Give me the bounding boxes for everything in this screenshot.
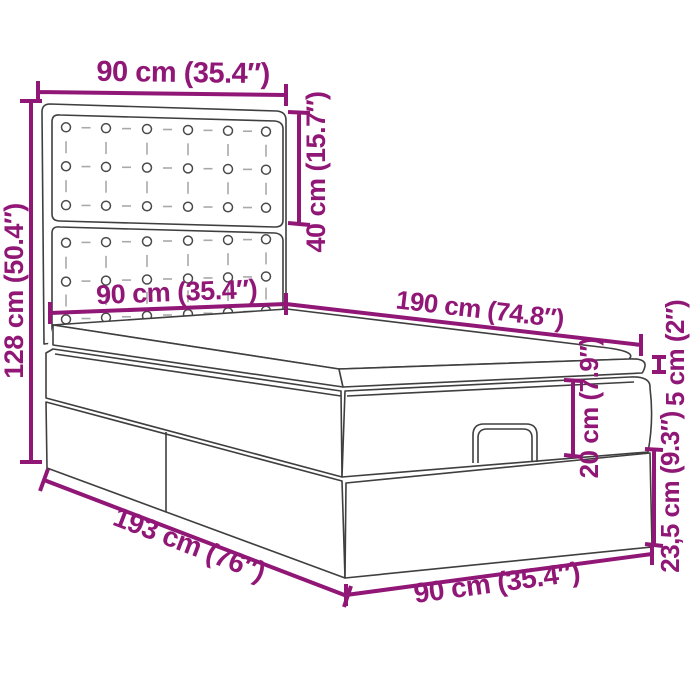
dim-label-frame-height: 20 cm (7.9″) (574, 338, 604, 479)
tuft-button (62, 315, 71, 324)
tuft-button (184, 125, 193, 134)
tuft-button (262, 165, 271, 174)
tuft-button (143, 163, 152, 172)
dim-label-headboard-panel-height: 40 cm (15.7″) (301, 91, 331, 252)
tuft-button (62, 277, 71, 286)
dim-headboard-panel-height: 40 cm (15.7″) (288, 91, 331, 252)
tuft-button (102, 124, 111, 133)
tuft-button (224, 126, 233, 135)
tuft-button (184, 202, 193, 211)
diagram-canvas: 90 cm (35.4″) 128 cm (50.4″) 40 cm (15.7… (0, 0, 700, 700)
tuft-button (62, 238, 71, 247)
dim-label-headboard-width: 90 cm (35.4″) (96, 56, 270, 90)
dim-mattress-thickness: 5 cm (2″) (652, 300, 690, 406)
tuft-button (62, 162, 71, 171)
tuft-button (102, 162, 111, 171)
tuft-button (62, 123, 71, 132)
tuft-button (62, 201, 71, 210)
tuft-button (143, 125, 152, 134)
tuft-button (184, 164, 193, 173)
dim-label-base-height: 23,5 cm (9.3″) (655, 411, 685, 573)
tuft-button (143, 202, 152, 211)
tuft-button (143, 237, 152, 246)
tuft-button (224, 235, 233, 244)
dim-label-overall-height: 128 cm (50.4″) (0, 203, 29, 379)
tuft-button (262, 203, 271, 212)
tuft-button (262, 127, 271, 136)
tuft-button (102, 238, 111, 247)
tuft-button (262, 235, 271, 244)
tuft-button (102, 201, 111, 210)
dim-headboard-width: 90 cm (35.4″) (38, 56, 286, 106)
bed-dimension-diagram: 90 cm (35.4″) 128 cm (50.4″) 40 cm (15.7… (0, 0, 700, 700)
tuft-button (262, 272, 271, 281)
dim-overall-height: 128 cm (50.4″) (0, 101, 42, 462)
tuft-button (224, 165, 233, 174)
dim-label-mattress-thickness: 5 cm (2″) (660, 300, 690, 406)
tuft-button (184, 236, 193, 245)
tuft-button (224, 203, 233, 212)
dim-label-bed-surface-width: 90 cm (35.4″) (96, 274, 258, 310)
